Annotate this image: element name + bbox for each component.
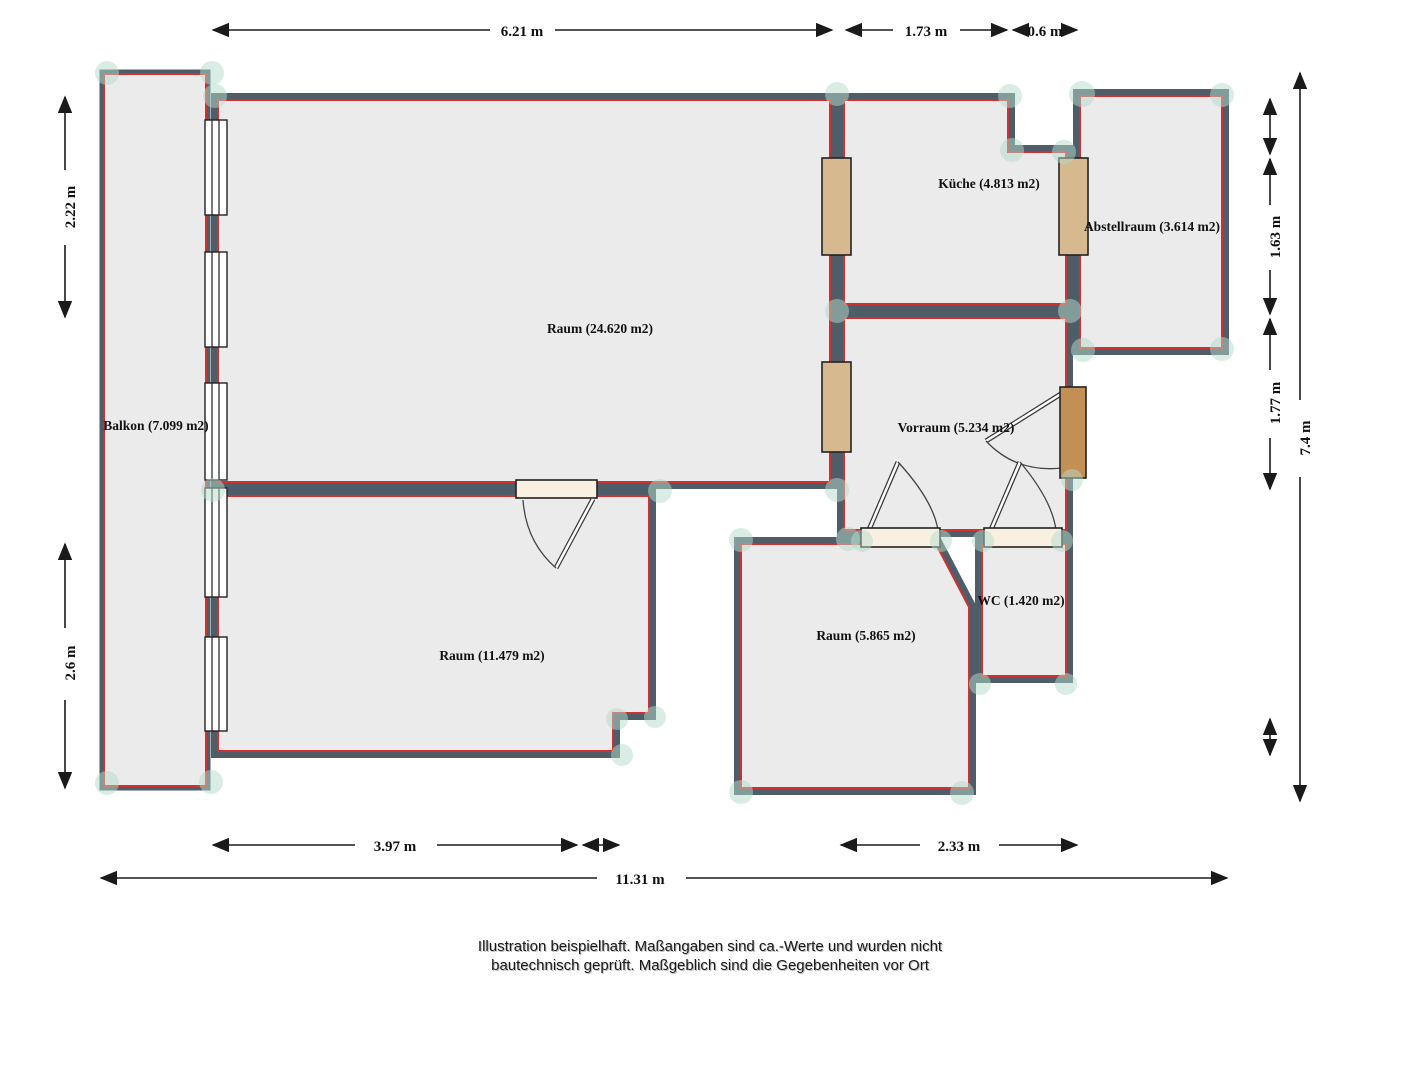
label-raum-24: Raum (24.620 m2) xyxy=(547,321,653,336)
label-abstellraum: Abstellraum (3.614 m2) xyxy=(1084,219,1220,234)
label-balkon: Balkon (7.099 m2) xyxy=(103,418,208,433)
svg-text:6.21 m: 6.21 m xyxy=(501,24,544,40)
label-wc: WC (1.420 m2) xyxy=(977,593,1064,608)
svg-text:0.6 m: 0.6 m xyxy=(1028,24,1064,40)
svg-text:7.4 m: 7.4 m xyxy=(1298,420,1314,456)
dim-bottom-2: 2.33 m xyxy=(841,839,1077,855)
window xyxy=(205,120,227,215)
dim-top-3: 0.6 m xyxy=(1013,24,1077,40)
svg-text:1.73 m: 1.73 m xyxy=(905,24,948,40)
dim-left-1: 2.22 m xyxy=(63,97,79,317)
label-vorraum: Vorraum (5.234 m2) xyxy=(898,420,1015,435)
room-wc xyxy=(982,544,1066,676)
window xyxy=(205,252,227,347)
door-kueche-raum xyxy=(822,158,851,255)
floorplan-page: Balkon (7.099 m2) Raum (24.620 m2) Küche… xyxy=(0,0,1420,1080)
dim-right-1: 1.63 m xyxy=(1268,159,1284,314)
label-raum-11: Raum (11.479 m2) xyxy=(439,648,544,663)
room-raum-5 xyxy=(741,544,969,788)
svg-text:2.22 m: 2.22 m xyxy=(63,185,79,228)
dim-left-2: 2.6 m xyxy=(63,544,79,788)
floorplan-drawing: Balkon (7.099 m2) Raum (24.620 m2) Küche… xyxy=(0,0,1420,1080)
svg-text:11.31 m: 11.31 m xyxy=(615,872,665,888)
door-vorraum-raum xyxy=(822,362,851,452)
dim-right-2: 1.77 m xyxy=(1268,319,1284,489)
svg-text:3.97 m: 3.97 m xyxy=(374,839,417,855)
dim-bottom-total: 11.31 m xyxy=(101,872,1227,888)
disclaimer-line-2: bautechnisch geprüft. Maßgeblich sind di… xyxy=(0,957,1420,976)
room-raum-24 xyxy=(218,100,830,482)
dim-bottom-1: 3.97 m xyxy=(213,839,577,855)
svg-text:2.6 m: 2.6 m xyxy=(63,645,79,681)
svg-text:2.33 m: 2.33 m xyxy=(938,839,981,855)
window xyxy=(205,488,227,597)
room-raum-11 xyxy=(218,496,649,751)
dim-right-total: 7.4 m xyxy=(1298,73,1314,801)
label-raum-5: Raum (5.865 m2) xyxy=(816,628,915,643)
room-kueche xyxy=(844,100,1066,304)
disclaimer-text: Illustration beispielhaft. Maßangaben si… xyxy=(0,938,1420,976)
window xyxy=(205,637,227,731)
dim-top-2: 1.73 m xyxy=(846,24,1007,40)
label-kueche: Küche (4.813 m2) xyxy=(938,176,1040,191)
disclaimer-line-1: Illustration beispielhaft. Maßangaben si… xyxy=(0,938,1420,957)
svg-text:1.77 m: 1.77 m xyxy=(1268,381,1284,424)
dim-top-1: 6.21 m xyxy=(213,24,832,40)
door-kueche-abstellraum xyxy=(1059,158,1088,255)
svg-text:1.63 m: 1.63 m xyxy=(1268,215,1284,258)
